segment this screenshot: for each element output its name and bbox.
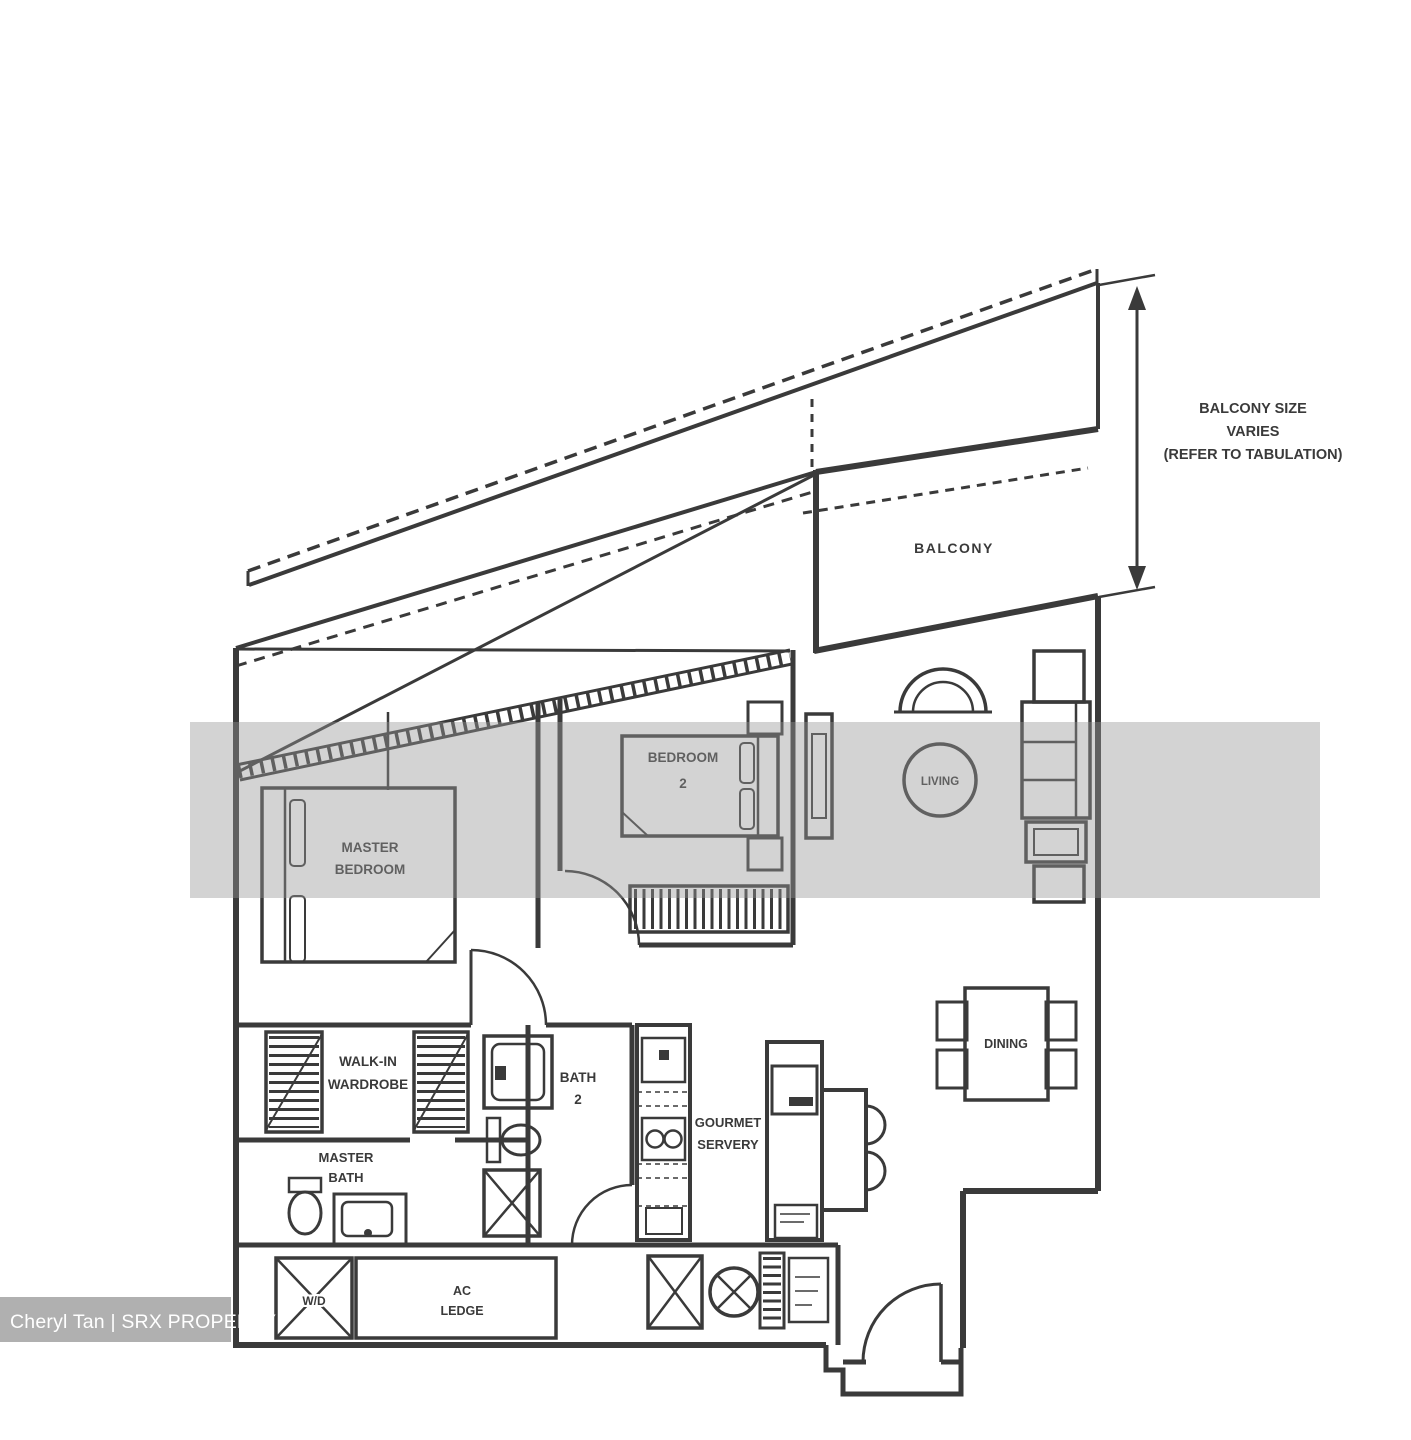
- dimension-arrow: [1099, 275, 1155, 597]
- washer-dryer-label: W/D: [302, 1294, 326, 1308]
- agent-watermark-text: Cheryl Tan | SRX PROPERTY: [10, 1311, 276, 1333]
- bath2-label-1: BATH: [560, 1070, 597, 1085]
- master-bath-label-1: MASTER: [319, 1150, 375, 1165]
- entry-door: [863, 1284, 941, 1362]
- armchair: [894, 669, 992, 712]
- gourmet-servery-label-2: SERVERY: [697, 1137, 759, 1152]
- dining-label: DINING: [984, 1037, 1028, 1051]
- walk-in-wardrobe-label-1: WALK-IN: [339, 1054, 397, 1069]
- kitchen-counter-left: [637, 1025, 690, 1240]
- service-shaft-box: [648, 1256, 702, 1328]
- db-box: [789, 1258, 828, 1322]
- annotation-line-2: VARIES: [1227, 424, 1280, 440]
- kitchen-counter-right: [767, 1042, 885, 1240]
- master-bath-vanity: [334, 1194, 406, 1244]
- annotation-line-1: BALCONY SIZE: [1199, 401, 1307, 417]
- bath2-shower: [484, 1036, 552, 1108]
- bath2-shaft: [484, 1170, 540, 1236]
- service-hatch-strip: [760, 1253, 784, 1328]
- balcony: [803, 399, 1098, 653]
- annotation-line-3: (REFER TO TABULATION): [1164, 447, 1343, 463]
- ac-ledge-label-2: LEDGE: [440, 1304, 483, 1318]
- floor-plan-svg: BALCONY BALCONY SIZE VARIES (REFER TO TA…: [0, 0, 1411, 1440]
- balcony-label: BALCONY: [914, 540, 994, 556]
- balcony-size-annotation: BALCONY SIZE VARIES (REFER TO TABULATION…: [1164, 401, 1343, 463]
- floor-plan-page: BALCONY BALCONY SIZE VARIES (REFER TO TA…: [0, 0, 1411, 1440]
- watermark-band: [190, 722, 1320, 898]
- ac-ledge-label-1: AC: [453, 1284, 471, 1298]
- gourmet-servery-label-1: GOURMET: [695, 1115, 762, 1130]
- bath2-label-2: 2: [574, 1092, 582, 1107]
- exhaust-fan-icon: [710, 1268, 758, 1316]
- roof-lines: [248, 269, 1097, 586]
- walk-in-wardrobe-label-2: WARDROBE: [328, 1077, 408, 1092]
- master-bath-label-2: BATH: [328, 1170, 363, 1185]
- ac-ledge-box: [356, 1258, 556, 1338]
- master-bath-toilet: [289, 1178, 321, 1234]
